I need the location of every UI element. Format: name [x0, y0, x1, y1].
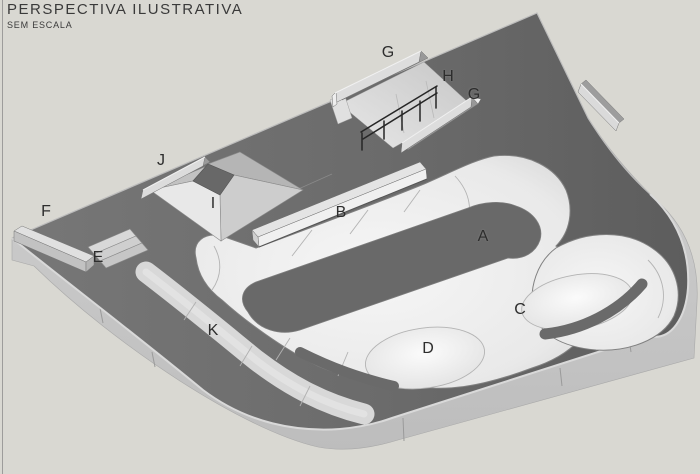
skatepark-illustration [0, 0, 700, 474]
drawing-subtitle: SEM ESCALA [7, 20, 243, 30]
title-block: PERSPECTIVA ILUSTRATIVA SEM ESCALA [7, 1, 243, 30]
sheet-border-line [2, 0, 3, 474]
drawing-title: PERSPECTIVA ILUSTRATIVA [7, 1, 243, 18]
drawing-sheet: PERSPECTIVA ILUSTRATIVA SEM ESCALA ABCDE… [0, 0, 700, 474]
